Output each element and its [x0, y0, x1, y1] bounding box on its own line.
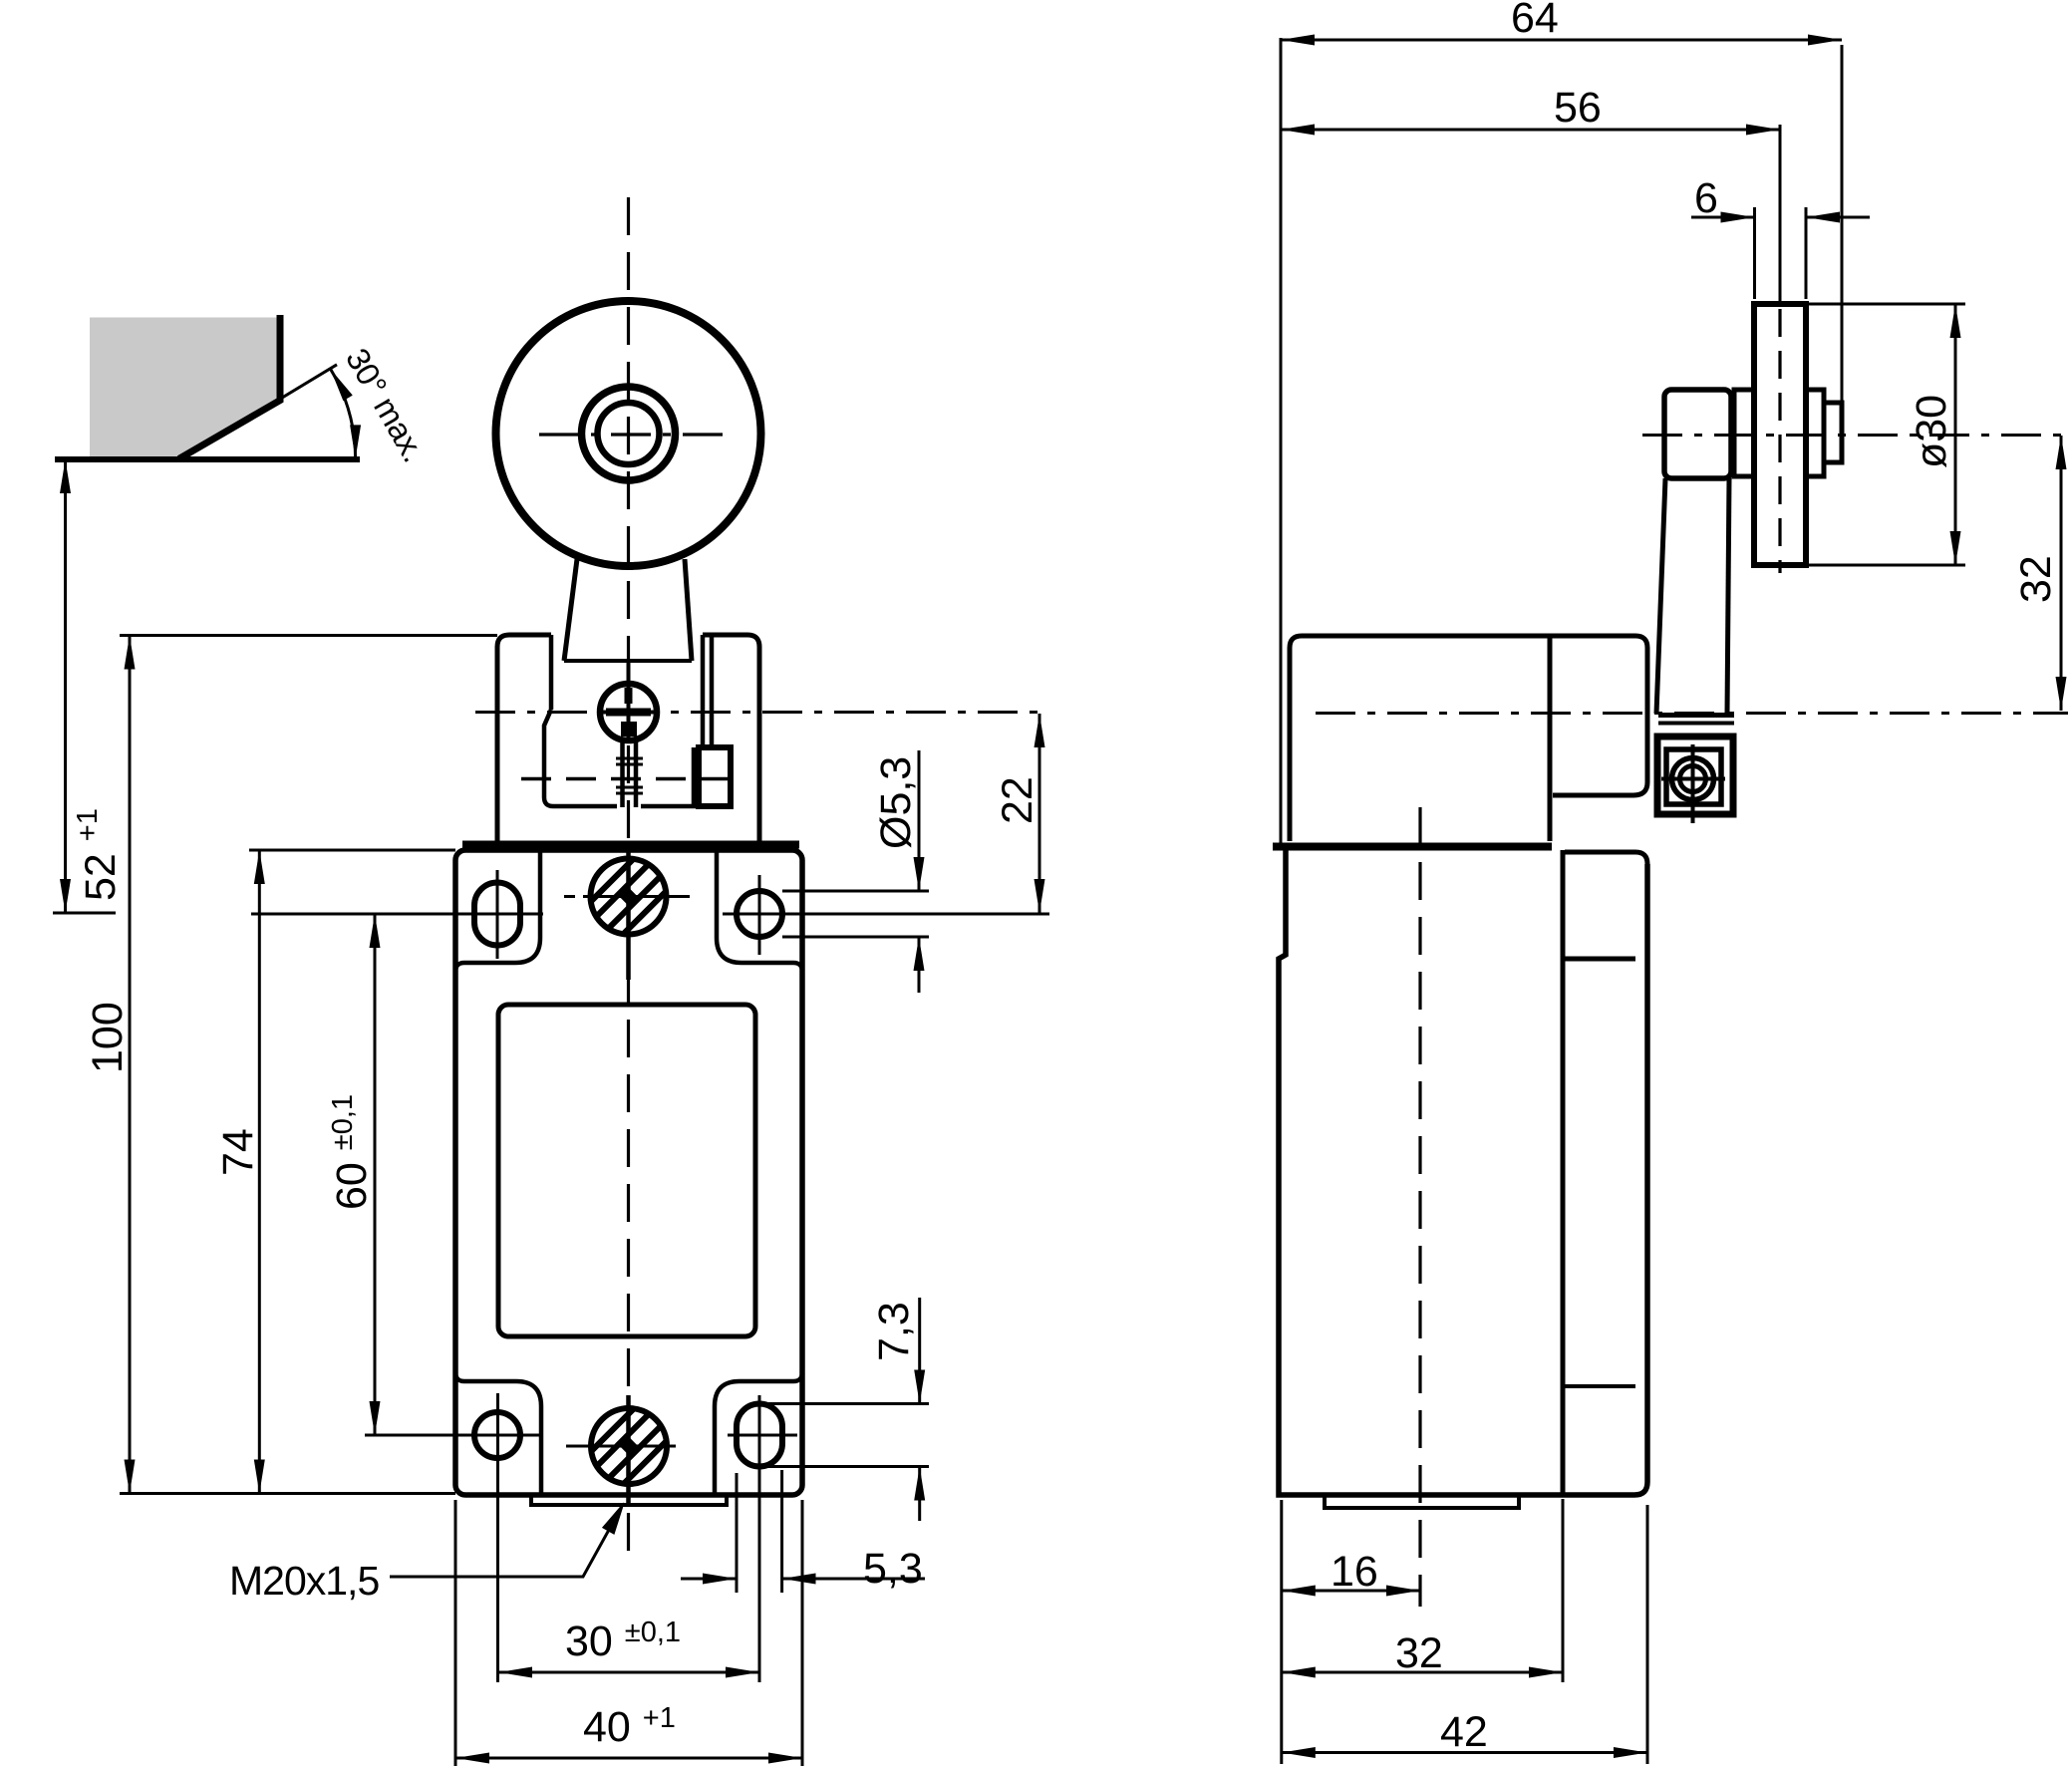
svg-text:40 +1: 40 +1	[583, 1702, 676, 1751]
svg-text:6: 6	[1694, 174, 1718, 222]
svg-text:Ø5,3: Ø5,3	[872, 756, 920, 849]
svg-text:64: 64	[1511, 0, 1559, 42]
svg-text:5,3: 5,3	[863, 1545, 923, 1593]
svg-text:M20x1,5: M20x1,5	[229, 1558, 379, 1604]
svg-text:30 ±0,1: 30 ±0,1	[565, 1617, 681, 1665]
svg-text:32: 32	[1395, 1629, 1443, 1677]
svg-text:100: 100	[84, 1002, 132, 1073]
svg-text:7,3: 7,3	[870, 1302, 918, 1361]
svg-text:56: 56	[1554, 84, 1602, 132]
svg-text:60 ±0,1: 60 ±0,1	[327, 1094, 376, 1210]
svg-text:32: 32	[2012, 555, 2060, 603]
svg-text:ø30: ø30	[1908, 395, 1955, 468]
svg-text:22: 22	[994, 776, 1041, 824]
svg-text:42: 42	[1440, 1708, 1488, 1756]
svg-text:16: 16	[1331, 1548, 1378, 1596]
svg-text:52 +1: 52 +1	[72, 808, 125, 901]
svg-text:30° max.: 30° max.	[339, 343, 432, 468]
svg-text:74: 74	[214, 1128, 262, 1176]
